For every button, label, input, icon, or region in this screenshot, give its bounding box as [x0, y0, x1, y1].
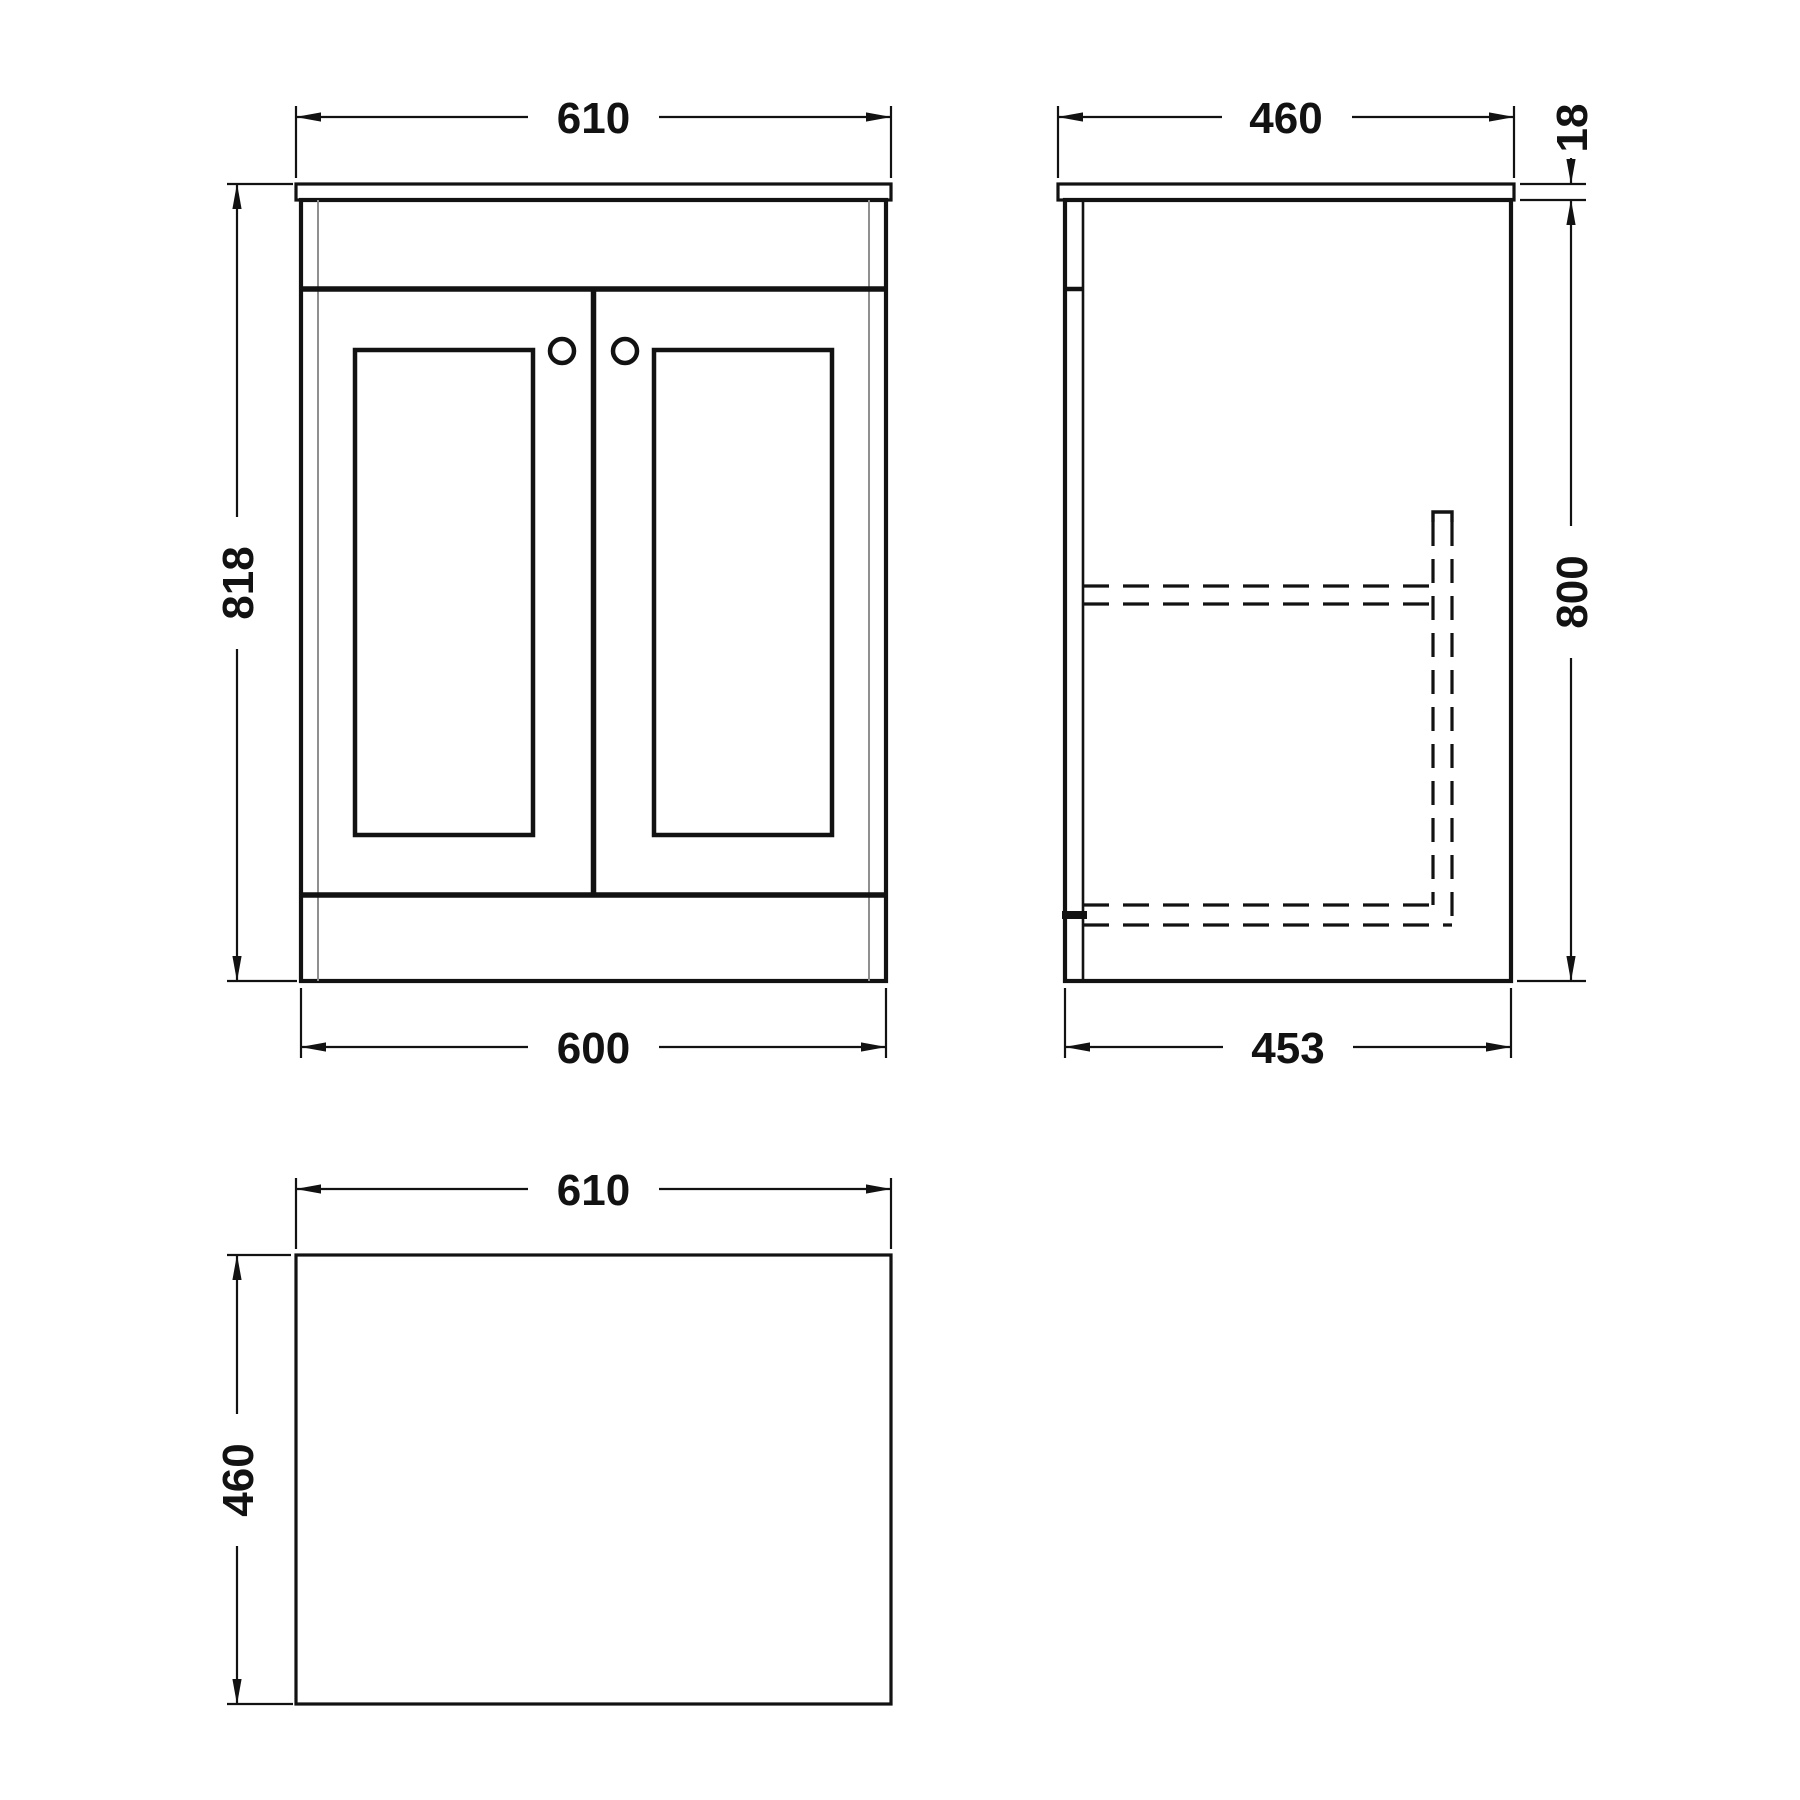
side-depth-top-dimension: 460: [1058, 94, 1514, 178]
front-view: 610 818 600: [214, 94, 891, 1073]
plan-view: 610 460: [214, 1166, 891, 1704]
front-countertop: [296, 184, 891, 200]
plan-depth-dimension: 460: [214, 1255, 293, 1704]
technical-drawing-page: 610 818 600: [0, 0, 1800, 1800]
plan-width-dimension: 610: [296, 1166, 891, 1249]
side-cabinet-body: [1065, 200, 1511, 981]
left-door-knob: [550, 339, 574, 363]
plan-width-label: 610: [557, 1166, 630, 1215]
side-depth-top-label: 460: [1249, 94, 1322, 143]
plan-outline: [296, 1255, 891, 1704]
side-countertop: [1058, 184, 1514, 200]
front-width-top-label: 610: [557, 94, 630, 143]
technical-drawing-canvas: 610 818 600: [0, 0, 1800, 1800]
side-bottom-shelf-tick: [1062, 911, 1087, 919]
side-top-thickness-label: 18: [1548, 104, 1597, 153]
front-left-door-panel: [355, 350, 533, 835]
side-depth-bottom-label: 453: [1251, 1024, 1324, 1073]
right-door-knob: [613, 339, 637, 363]
side-height-dimension: 800: [1517, 200, 1597, 981]
front-width-bottom-label: 600: [557, 1024, 630, 1073]
front-height-dimension: 818: [214, 184, 297, 981]
front-right-door-panel: [654, 350, 832, 835]
side-top-thickness-dimension: 18: [1520, 104, 1597, 200]
side-depth-bottom-dimension: 453: [1065, 988, 1511, 1073]
front-width-bottom-dimension: 600: [301, 988, 886, 1073]
side-back-channel-cap: [1433, 512, 1452, 522]
plan-depth-label: 460: [214, 1443, 263, 1516]
side-height-label: 800: [1548, 555, 1597, 628]
side-view: 460 18 800 453: [1058, 94, 1597, 1073]
front-width-top-dimension: 610: [296, 94, 891, 178]
front-height-label: 818: [214, 546, 263, 619]
